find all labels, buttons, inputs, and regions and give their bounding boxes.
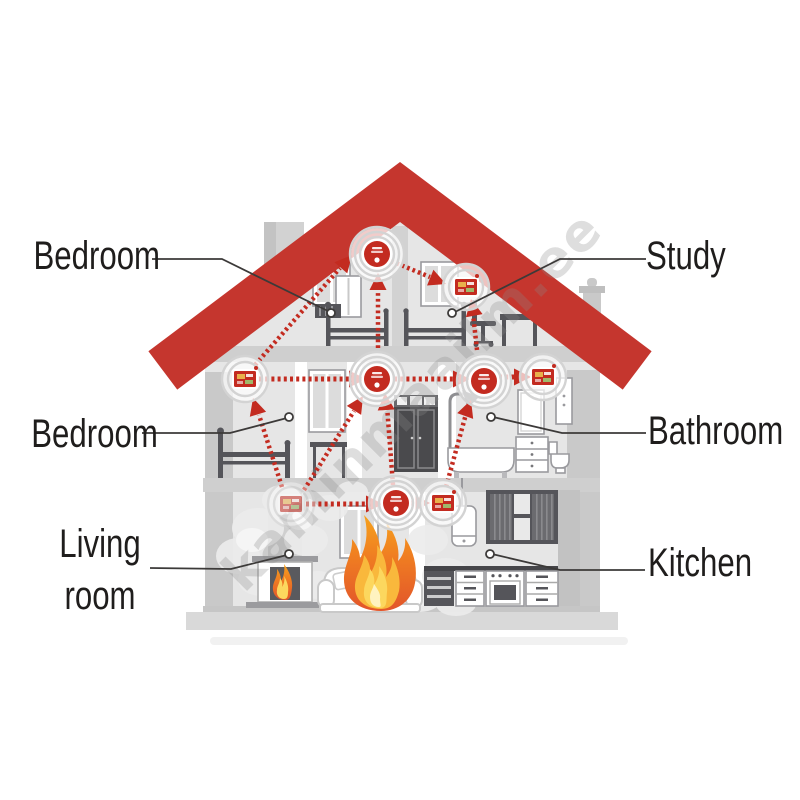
room-label-bedroom-attic: Bedroom (33, 236, 152, 276)
ground-shadow (210, 637, 628, 645)
room-label-bedroom-second: Bedroom (31, 414, 142, 454)
kitchen-tall-cabinet (558, 490, 580, 606)
alarm-panel (419, 479, 467, 527)
kitchen-counter (424, 566, 558, 606)
fire-alarm-infographic: kaminmaailm.ee (0, 0, 800, 800)
smoke-detector (350, 352, 404, 406)
room-label-kitchen: Kitchen (648, 543, 752, 583)
room-label-study: Study (646, 236, 726, 276)
foundation-slab (186, 612, 618, 630)
living-room-line-1: Living (34, 518, 165, 570)
alarm-panel (221, 355, 269, 403)
living-room-line-2: room (34, 570, 165, 622)
kitchen-upper-cabinets (486, 490, 558, 544)
room-label-bathroom: Bathroom (648, 411, 783, 451)
alarm-panel (267, 480, 315, 528)
room-label-living-room: Living room (34, 518, 165, 622)
alarm-panel (519, 353, 567, 401)
alarm-panel (442, 263, 490, 311)
smoke-detector (369, 476, 423, 530)
dresser (516, 437, 548, 472)
house-illustration: kaminmaailm.ee (0, 0, 800, 800)
smoke-detector (350, 227, 404, 281)
smoke-detector (457, 354, 511, 408)
oven (486, 571, 524, 606)
